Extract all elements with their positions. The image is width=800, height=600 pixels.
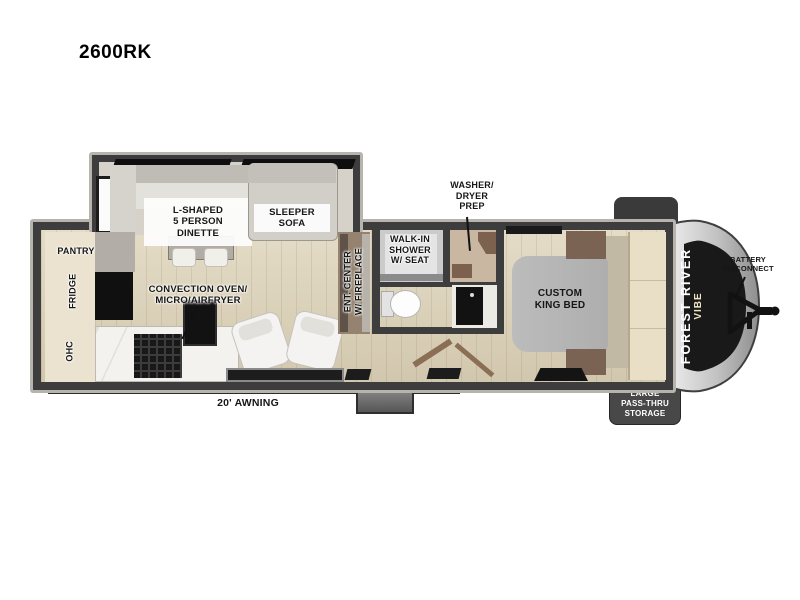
dinette-stool <box>172 248 196 267</box>
recliner-back <box>237 317 274 342</box>
headboard-platform <box>606 236 628 368</box>
ent-center-label: ENT. CENTER W/ FIREPLACE <box>342 227 363 337</box>
ohc-label: OHC <box>65 329 76 373</box>
front-wardrobe <box>628 232 666 380</box>
fridge-label: FRIDGE <box>68 262 79 320</box>
shower-threshold <box>380 274 443 281</box>
nightstand <box>566 231 606 259</box>
bath-wall-bottom <box>372 327 504 334</box>
shower-label: WALK-IN SHOWER W/ SEAT <box>374 234 446 266</box>
dinette-bench-left <box>110 165 136 237</box>
wardrobe-shelf <box>630 280 666 281</box>
sofa-label: SLEEPER SOFA <box>269 207 315 229</box>
cooktop <box>134 334 182 378</box>
closet-cabinet <box>452 264 472 278</box>
bottom-window <box>226 368 344 382</box>
convection-label: CONVECTION OVEN/ MICRO/AIRFRYER <box>136 284 260 306</box>
dinette-label-box: L-SHAPED 5 PERSON DINETTE <box>144 198 252 246</box>
floorplan-page: 2600RK 20' AWNING LARGE PASS-THRU STORAG… <box>0 0 800 600</box>
dinette-label: L-SHAPED 5 PERSON DINETTE <box>173 205 223 239</box>
recliner-back <box>299 315 336 338</box>
battery-disconnect-label: BATTERY DISCONNECT <box>716 256 780 274</box>
sleeper-sofa-back <box>248 163 336 183</box>
faucet <box>470 293 474 297</box>
bedroom-top-window <box>506 226 562 234</box>
bottom-window <box>345 369 372 380</box>
dinette-stool <box>204 248 228 267</box>
bedroom-bottom-window <box>534 368 588 381</box>
page-title: 2600RK <box>79 42 152 64</box>
king-bed-label: CUSTOM KING BED <box>516 288 604 312</box>
bottom-window <box>427 368 462 379</box>
sofa-label-box: SLEEPER SOFA <box>254 204 330 232</box>
brand-line2: VIBE <box>693 241 704 371</box>
awning-label: 20' AWNING <box>196 397 300 409</box>
washer-dryer-label: WASHER/ DRYER PREP <box>436 180 508 212</box>
refrigerator <box>95 272 133 320</box>
brand-line1: FOREST RIVER <box>679 241 693 371</box>
toilet <box>390 290 421 318</box>
brand-logo: FOREST RIVER VIBE <box>679 241 711 371</box>
wardrobe-shelf <box>630 328 666 329</box>
pantry-label: PANTRY <box>48 246 104 257</box>
hitch <box>726 288 780 336</box>
